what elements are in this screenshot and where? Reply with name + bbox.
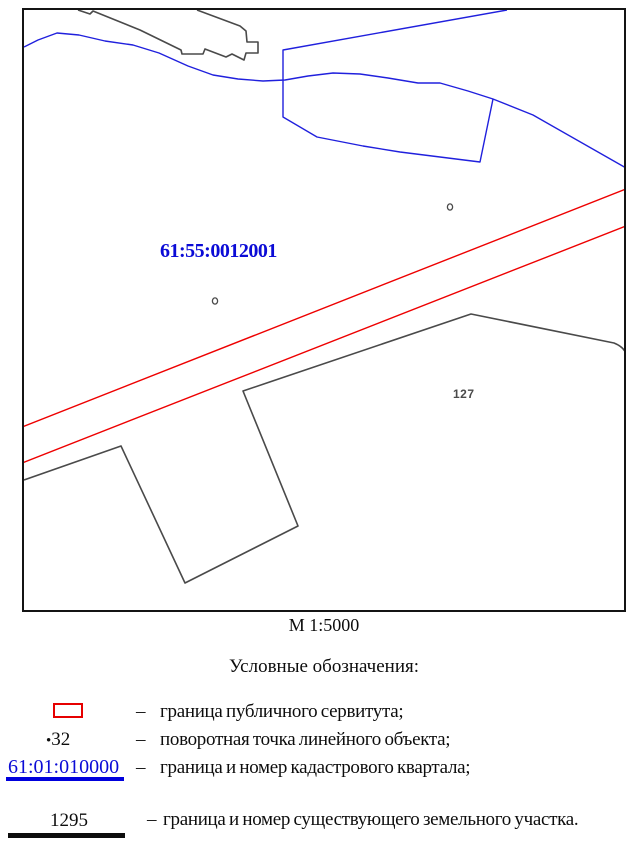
legend-dash: – [147, 808, 157, 831]
servitude-boundary-upper-line [24, 189, 624, 427]
cadastral-map-page: 61:55:0012001 127 М 1:5000 Условные обоз… [0, 0, 634, 848]
legend-dash: – [136, 700, 146, 723]
map-scale-label: М 1:5000 [22, 615, 626, 636]
point-marker-icon [212, 298, 217, 304]
servitude-boundary-symbol [53, 703, 83, 718]
quarter-boundary-wavy-line [24, 33, 624, 168]
legend-item-servitude-label: граница публичного сервитута; [160, 700, 403, 723]
legend-dash: – [136, 728, 146, 751]
existing-parcel-symbol: 1295 [50, 809, 88, 832]
map-frame: 61:55:0012001 127 [22, 8, 626, 612]
quarter-boundary-polygon-line [283, 10, 507, 162]
legend-item-turning-point-label: поворотная точка линейного объекта; [160, 728, 450, 751]
parcel-number: 127 [453, 387, 475, 401]
parcel-boundary-line [24, 314, 624, 583]
point-marker-icon [447, 204, 452, 210]
cadastral-quarter-symbol: 61:01:010000 [8, 755, 119, 779]
cadastral-quarter-number: 61:55:0012001 [160, 240, 277, 263]
legend-dash: – [136, 756, 146, 779]
map-canvas [24, 10, 624, 610]
turning-point-symbol: •32 [46, 728, 70, 753]
building-outline [78, 10, 258, 60]
legend-title: Условные обозначения: [22, 656, 626, 678]
existing-parcel-boundary-bar [8, 833, 125, 838]
servitude-boundary-lower-line [24, 226, 624, 463]
cadastral-quarter-boundary-bar [6, 777, 124, 781]
turning-point-number: 32 [51, 729, 70, 750]
legend-item-cadastral-quarter-label: граница и номер кадастрового квартала; [160, 756, 470, 779]
legend-item-existing-parcel-label: граница и номер существующего земельного… [163, 808, 578, 831]
